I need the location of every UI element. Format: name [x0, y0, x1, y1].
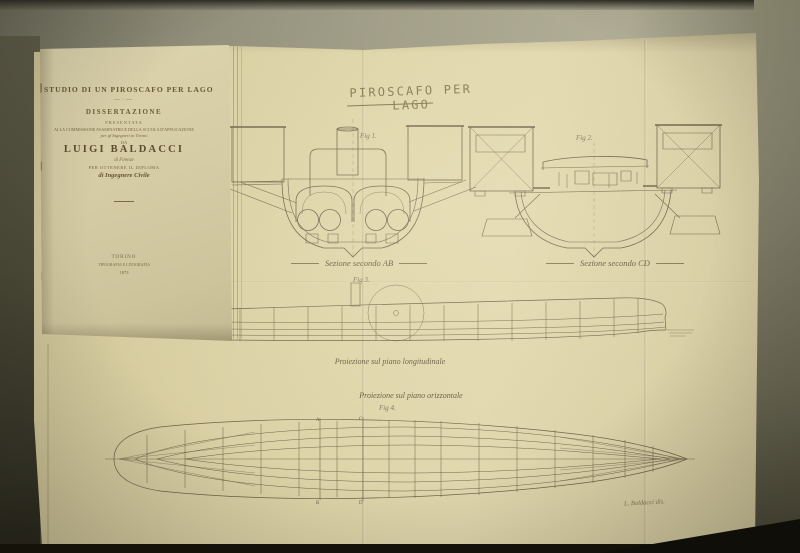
fig1-cross-section-drawing — [228, 116, 478, 258]
dissertation-booklet: STUDIO DI UN PIROSCAFO PER LAGO —·— DISS… — [36, 43, 234, 345]
fig4-label: Fig 4. — [379, 404, 396, 412]
caption-dash — [546, 263, 574, 264]
plate-fold-crease — [47, 344, 49, 544]
fig4-caption: Proiezione sul piano orizzontale — [316, 391, 506, 400]
plan-mark-D: D — [359, 501, 363, 506]
fig3-caption: Proiezione sul piano longitudinale — [283, 357, 497, 366]
caption-dash — [656, 263, 684, 264]
presented-line: PRESENTATA — [44, 120, 204, 125]
table-surface-right — [754, 0, 800, 553]
plan-mark-A: A — [316, 418, 320, 423]
plate-title: PIROSCAFO PER LAGO — [330, 81, 493, 115]
author-origin: di Firenze — [44, 158, 204, 163]
fig3-longitudinal-profile-drawing — [226, 283, 696, 355]
imprint-year: 1873 — [44, 270, 204, 275]
fig2-cross-section-drawing — [463, 114, 725, 266]
fig2-caption-text: Sezione secondo CD — [580, 258, 650, 268]
caption-dash — [291, 263, 319, 264]
fig2-caption: Sezione secondo CD — [520, 258, 710, 268]
booklet-title: STUDIO DI UN PIROSCAFO PER LAGO — [44, 85, 204, 94]
diploma-line: PER OTTENERE IL DIPLOMA — [44, 165, 204, 170]
fig1-caption-text: Sezione secondo AB — [325, 258, 393, 268]
fig2-linework — [468, 125, 722, 264]
booklet-subtitle: DISSERTAZIONE — [44, 108, 204, 116]
fig1-caption: Sezione secondo AB — [264, 258, 454, 268]
plan-mark-B: B — [316, 501, 320, 506]
commission-line: ALLA COMMISSIONE ESAMINATRICE DELLA SCUO… — [44, 127, 204, 132]
imprint-city: TORINO — [44, 255, 204, 260]
fig3-caption-text: Proiezione sul piano longitudinale — [335, 357, 446, 366]
imprint-printer: TIPOGRAFIA E LITOGRAFIA — [44, 262, 204, 267]
caption-dash — [399, 263, 427, 264]
fig4-linework: A C B D — [105, 417, 695, 506]
title-page: STUDIO DI UN PIROSCAFO PER LAGO —·— DISS… — [44, 43, 204, 343]
fig4-hull-plan-drawing: A C B D — [105, 412, 695, 504]
degree-line: di Ingegnere Civile — [44, 172, 204, 179]
separator-rule — [114, 201, 134, 202]
ornament-rule: —·— — [44, 97, 204, 103]
fig4-caption-text: Proiezione sul piano orizzontale — [359, 391, 462, 400]
fig1-linework — [230, 119, 476, 257]
fig3-linework — [226, 283, 694, 341]
engineers-line: per gl'Ingegneri in Torino — [44, 133, 204, 138]
author-name: LUIGI BALDACCI — [44, 144, 204, 155]
photo-of-antique-dissertation-and-plate: PIROSCAFO PER LAGO Fig 1. — [0, 0, 800, 553]
